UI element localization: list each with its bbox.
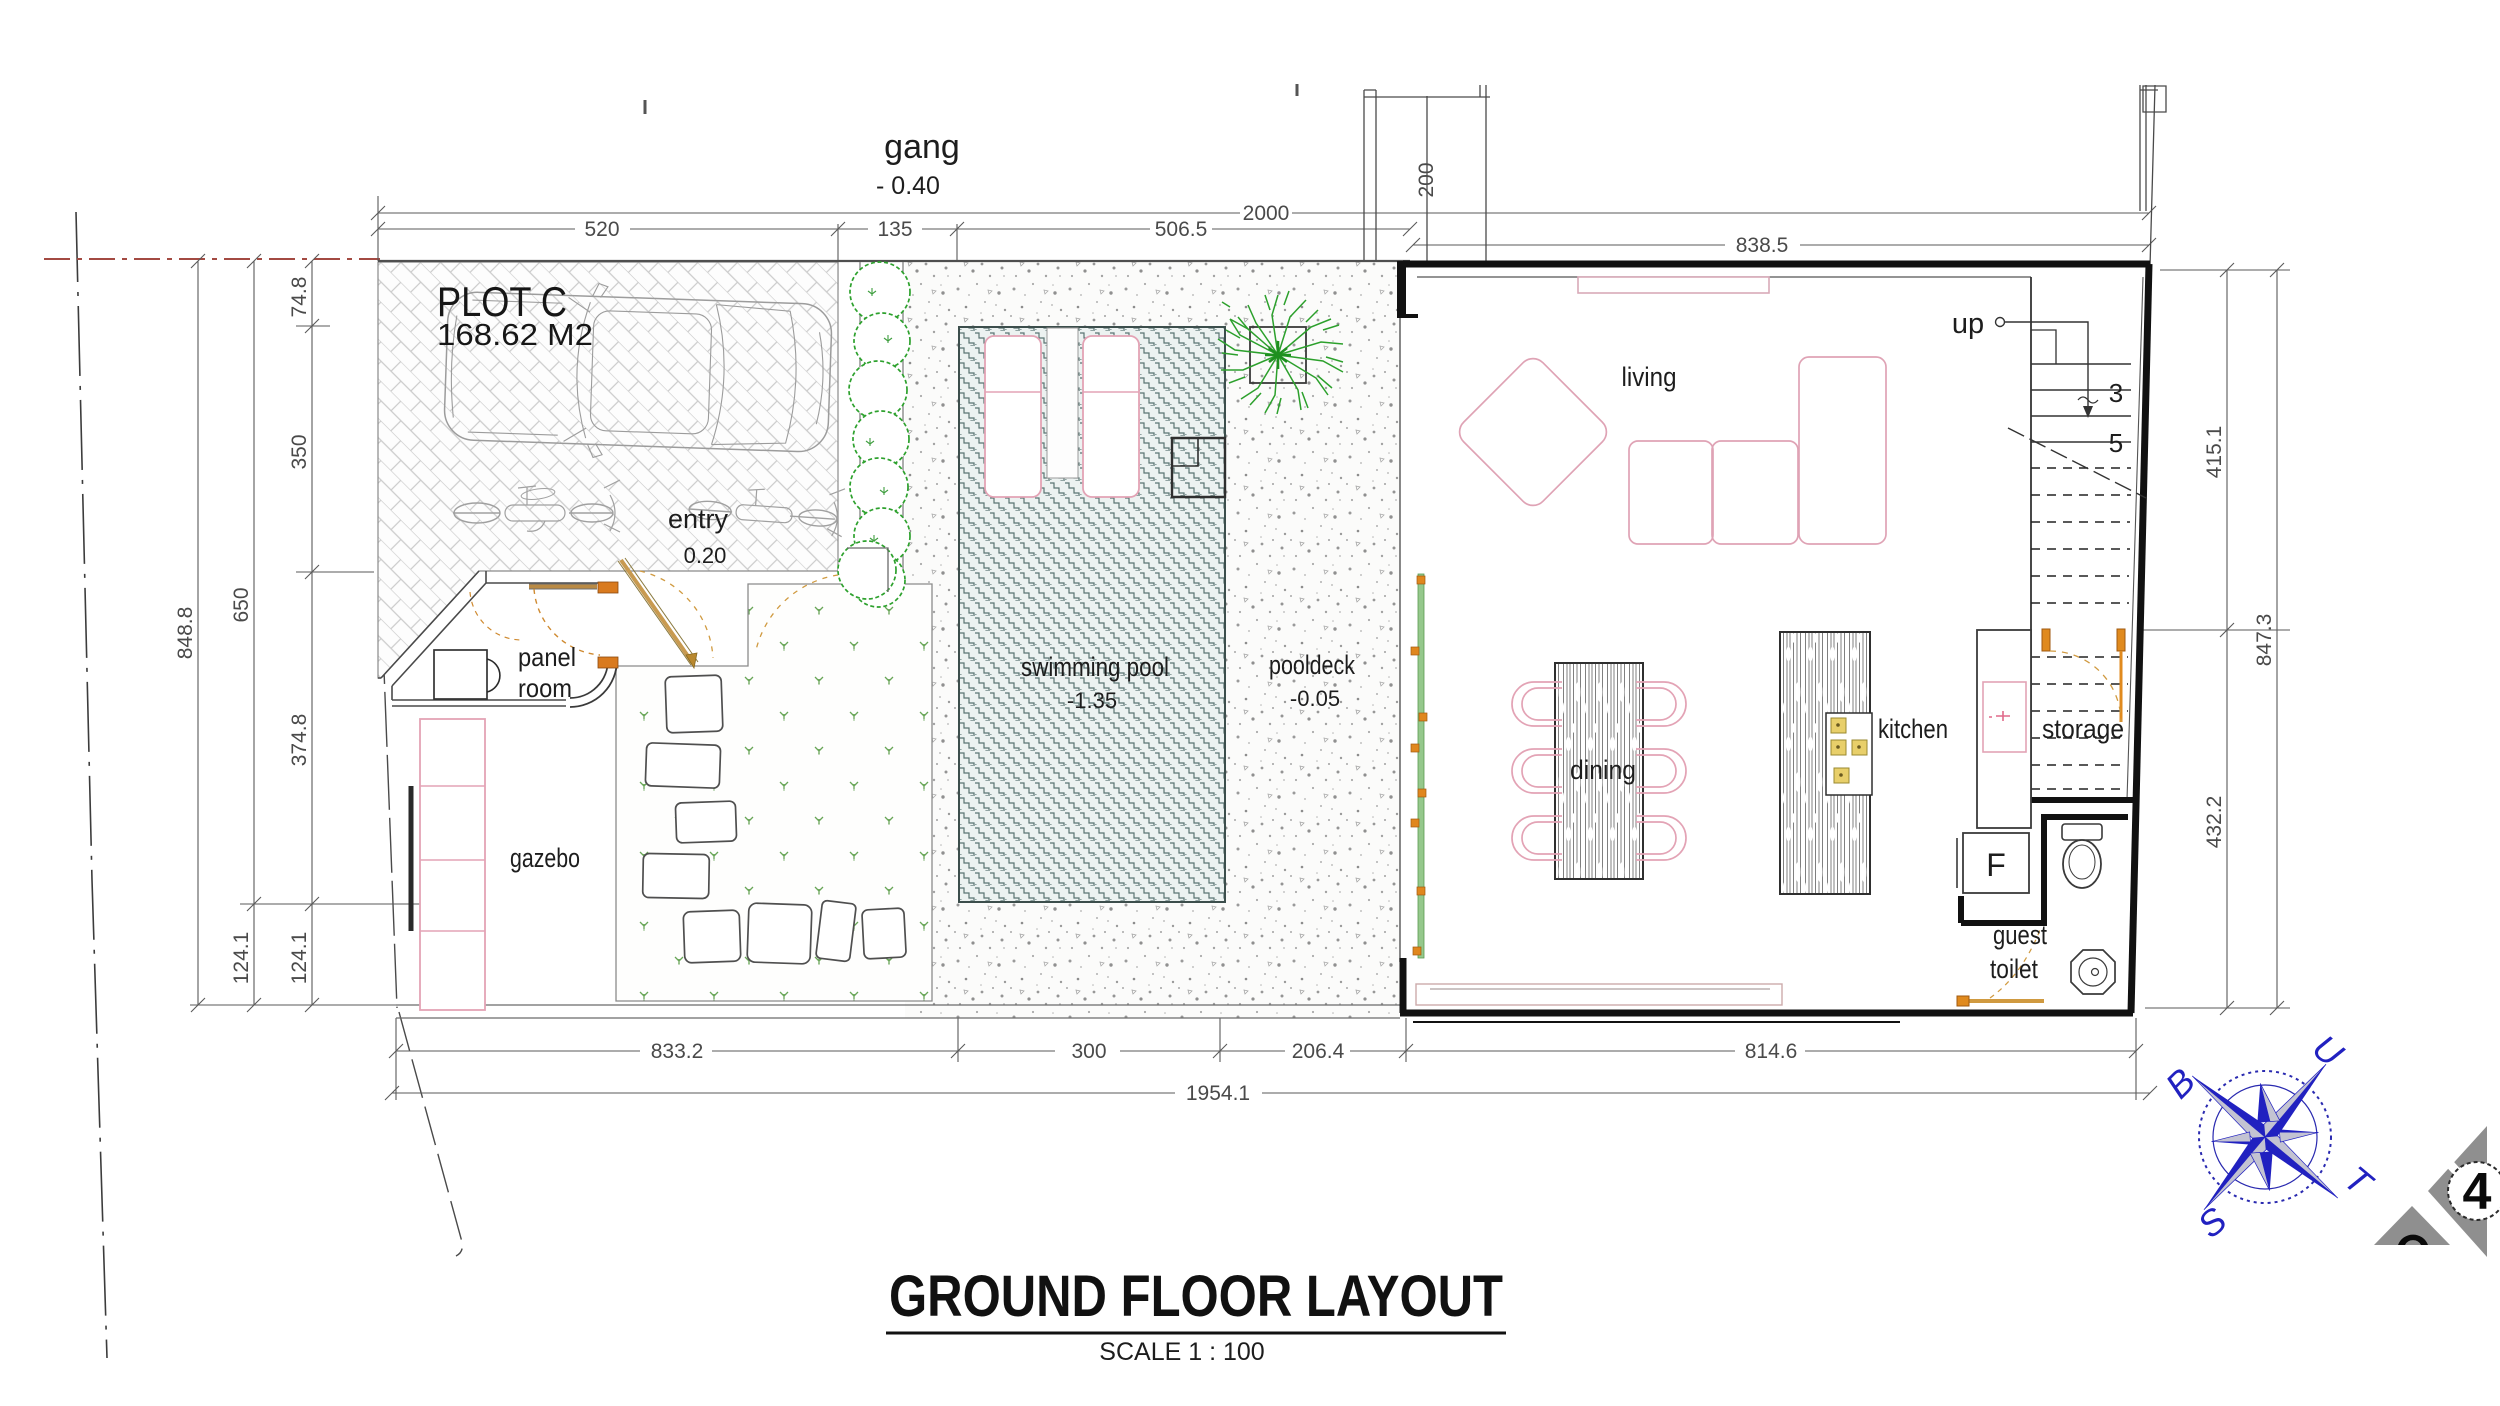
svg-text:pooldeck: pooldeck — [1269, 650, 1355, 680]
svg-text:storage: storage — [2042, 714, 2124, 744]
svg-text:415.1: 415.1 — [2203, 426, 2226, 479]
svg-text:374.8: 374.8 — [288, 714, 311, 767]
svg-text:up: up — [1952, 308, 1984, 340]
svg-text:206.4: 206.4 — [1292, 1040, 1345, 1063]
svg-text:124.1: 124.1 — [230, 932, 253, 985]
svg-text:gazebo: gazebo — [510, 843, 580, 873]
svg-text:panel: panel — [518, 642, 576, 672]
svg-text:650: 650 — [230, 587, 253, 622]
svg-text:guest: guest — [1993, 920, 2047, 950]
svg-text:2000: 2000 — [1243, 202, 1290, 225]
svg-text:GROUND FLOOR LAYOUT: GROUND FLOOR LAYOUT — [889, 1264, 1503, 1329]
svg-text:F: F — [1986, 847, 2006, 883]
svg-text:4: 4 — [2463, 1163, 2492, 1221]
svg-text:814.6: 814.6 — [1745, 1040, 1798, 1063]
svg-text:kitchen: kitchen — [1878, 714, 1948, 744]
svg-text:432.2: 432.2 — [2203, 796, 2226, 849]
svg-text:living: living — [1622, 362, 1677, 392]
svg-text:gang: gang — [884, 128, 960, 166]
svg-text:3: 3 — [2109, 378, 2123, 408]
svg-text:74.8: 74.8 — [288, 277, 311, 318]
svg-text:entry: entry — [668, 504, 728, 534]
svg-text:0.20: 0.20 — [684, 543, 727, 568]
svg-text:SCALE 1 : 100: SCALE 1 : 100 — [1099, 1338, 1264, 1366]
svg-text:room: room — [518, 673, 572, 703]
svg-text:124.1: 124.1 — [288, 932, 311, 985]
svg-text:833.2: 833.2 — [651, 1040, 704, 1063]
svg-text:- 0.40: - 0.40 — [876, 172, 940, 200]
svg-text:847.3: 847.3 — [2253, 614, 2276, 667]
svg-text:350: 350 — [288, 434, 311, 469]
svg-text:toilet: toilet — [1990, 954, 2038, 984]
svg-text:848.8: 848.8 — [174, 607, 197, 660]
svg-text:506.5: 506.5 — [1155, 218, 1208, 241]
svg-text:1954.1: 1954.1 — [1186, 1082, 1250, 1105]
svg-text:300: 300 — [1071, 1040, 1106, 1063]
svg-text:swimming pool: swimming pool — [1021, 652, 1169, 682]
svg-text:520: 520 — [584, 218, 619, 241]
svg-text:dining: dining — [1570, 755, 1636, 785]
svg-text:135: 135 — [877, 218, 912, 241]
svg-text:5: 5 — [2109, 428, 2123, 458]
svg-text:-1.35: -1.35 — [1067, 688, 1117, 713]
svg-text:168.62 M2: 168.62 M2 — [437, 317, 593, 352]
svg-text:838.5: 838.5 — [1736, 234, 1789, 257]
svg-text:200: 200 — [1415, 162, 1438, 197]
svg-text:-0.05: -0.05 — [1290, 686, 1340, 711]
